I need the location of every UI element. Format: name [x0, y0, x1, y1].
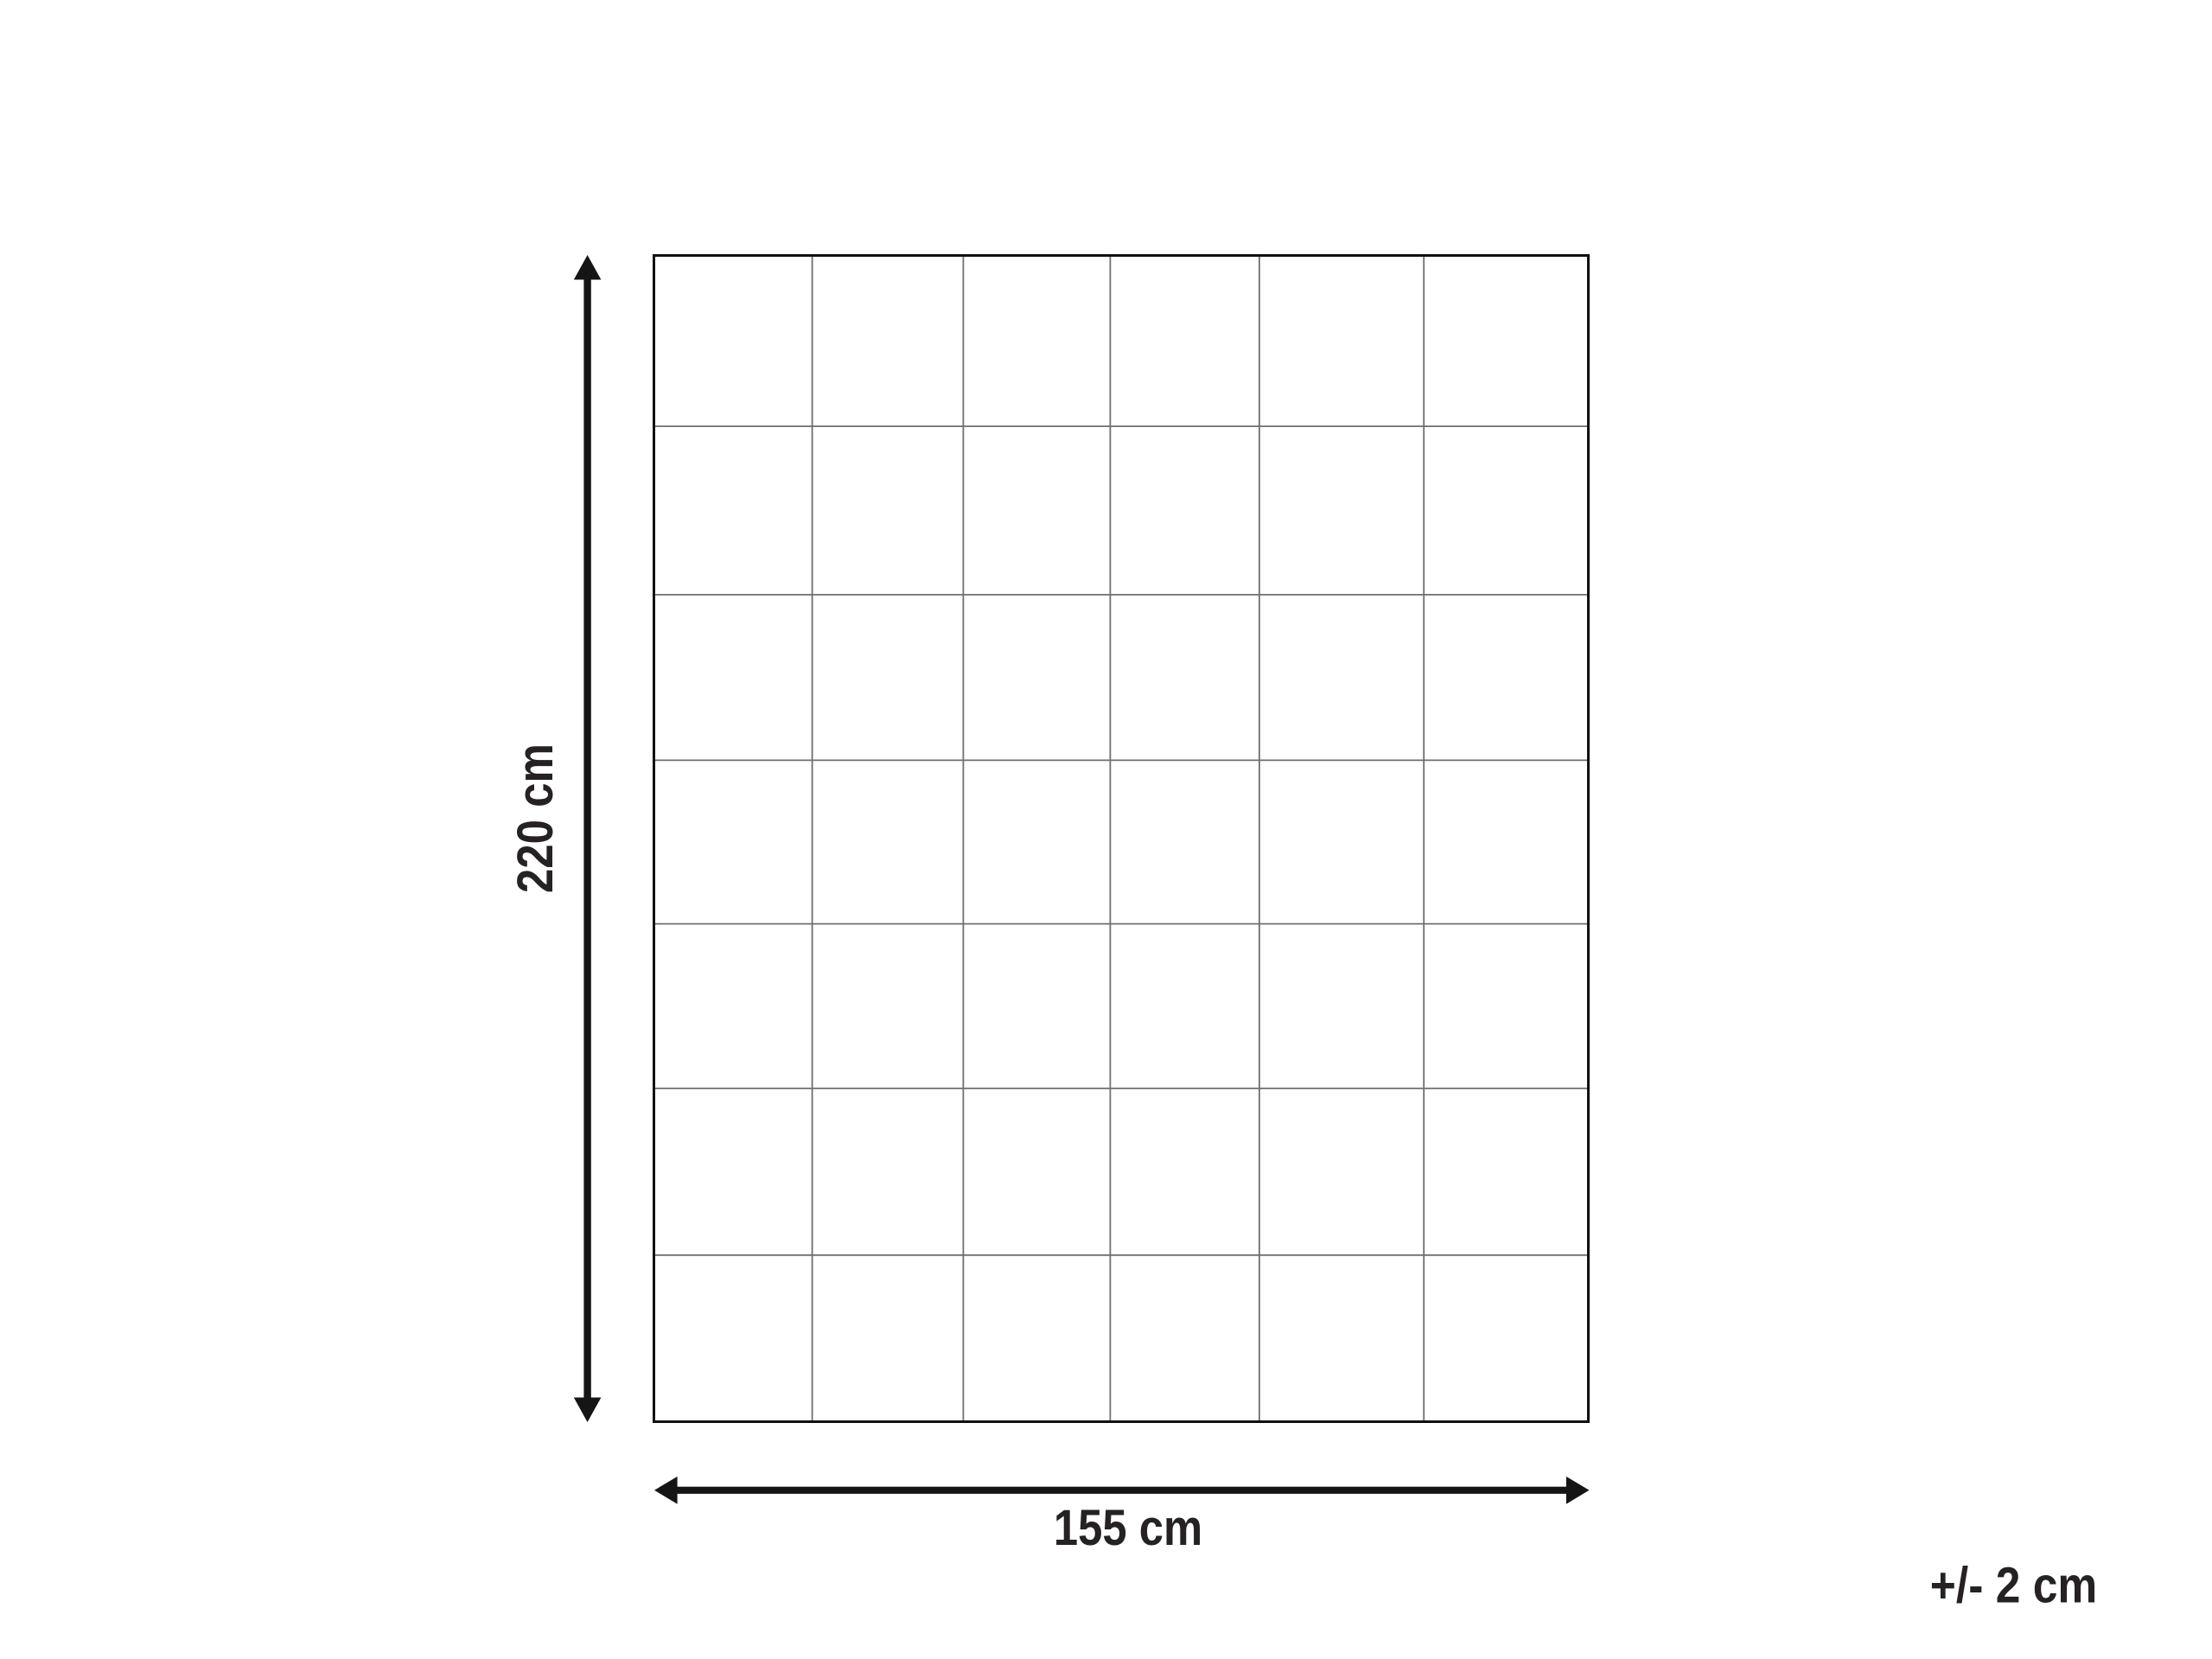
svg-text:155 cm: 155 cm — [1054, 1500, 1202, 1556]
svg-text:220 cm: 220 cm — [507, 743, 564, 893]
svg-text:+/- 2 cm: +/- 2 cm — [1930, 1557, 2097, 1614]
